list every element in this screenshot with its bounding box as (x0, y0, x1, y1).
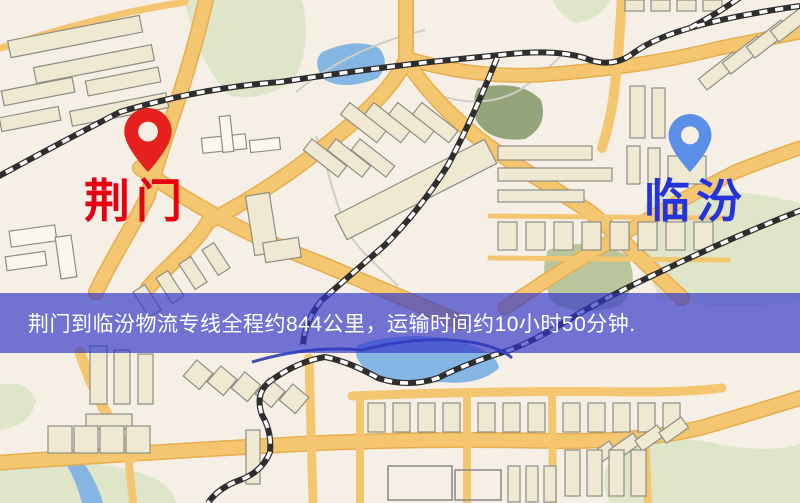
destination-city-label: 临汾 (644, 178, 748, 224)
destination-pin-icon[interactable] (668, 114, 712, 172)
route-banner-text: 荆门到临汾物流专线全程约844公里，运输时间约10小时50分钟. (28, 308, 636, 338)
map-canvas: 荆门到临汾物流专线全程约844公里，运输时间约10小时50分钟. 荆门 临汾 (0, 0, 800, 503)
map-image (0, 0, 800, 503)
route-banner: 荆门到临汾物流专线全程约844公里，运输时间约10小时50分钟. (0, 293, 800, 353)
origin-city-label: 荆门 (84, 178, 188, 224)
origin-pin-icon[interactable] (124, 108, 172, 172)
